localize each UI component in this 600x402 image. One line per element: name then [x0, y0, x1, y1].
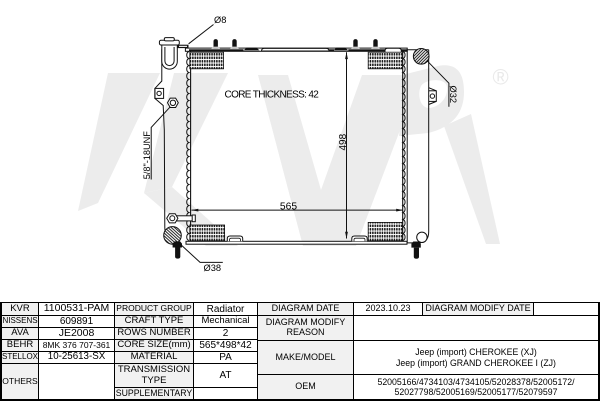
svg-text:®: ®	[493, 65, 509, 90]
svg-text:CORE THICKNESS: 42: CORE THICKNESS: 42	[225, 90, 320, 101]
svg-text:565: 565	[280, 201, 297, 212]
svg-text:Ø38: Ø38	[204, 263, 222, 273]
svg-text:498: 498	[338, 133, 349, 150]
svg-text:5/8"-18UNF: 5/8"-18UNF	[142, 131, 152, 180]
svg-text:Ø8: Ø8	[214, 15, 226, 25]
svg-text:Ø32: Ø32	[448, 86, 458, 104]
